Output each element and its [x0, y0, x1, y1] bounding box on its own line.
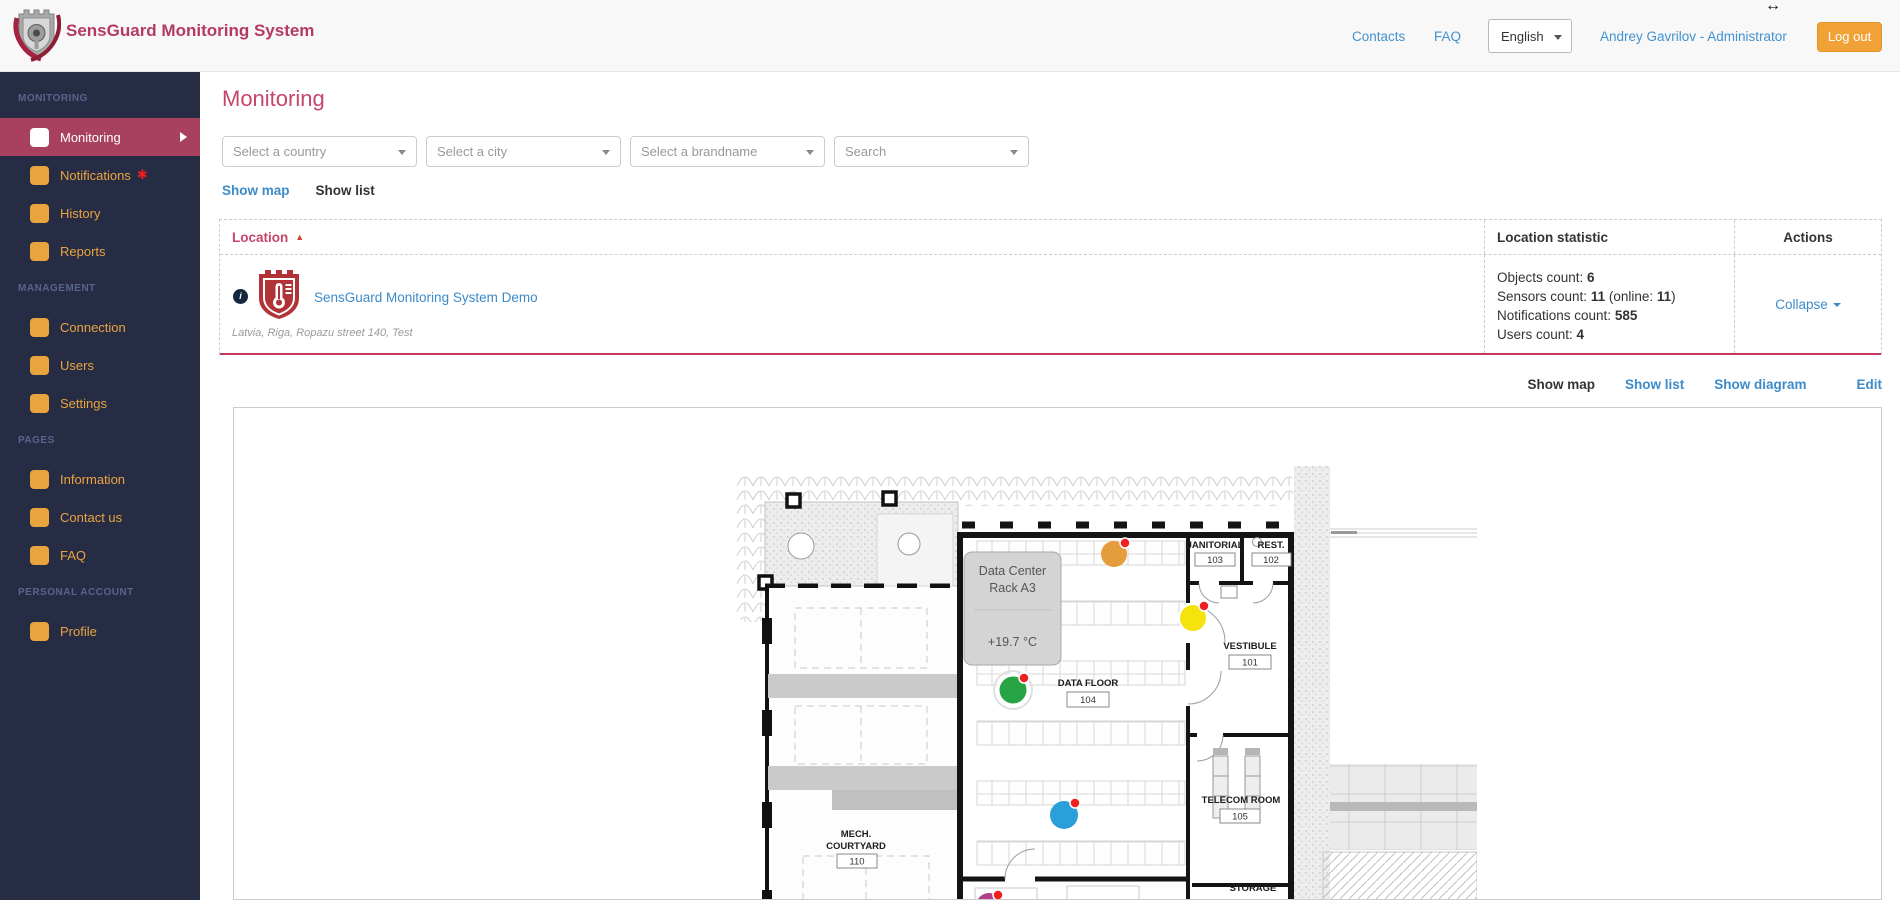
- sidebar-section-monitoring: MONITORING: [0, 80, 200, 118]
- country-select[interactable]: Select a country: [222, 136, 417, 167]
- sidebar-item-monitoring[interactable]: Monitoring: [0, 118, 200, 156]
- profile-icon: [30, 622, 49, 641]
- row-show-list-link[interactable]: Show list: [1625, 377, 1684, 392]
- server-rack-row: [977, 721, 1185, 745]
- room-number-110: 110: [849, 857, 864, 868]
- dropdown-caret-icon: [398, 150, 406, 155]
- alert-dot-icon: [1120, 538, 1130, 548]
- sidebar-item-history[interactable]: History: [0, 194, 200, 232]
- sidebar-section-management: MANAGEMENT: [0, 270, 200, 308]
- collapse-button[interactable]: Collapse: [1775, 297, 1841, 312]
- city-select[interactable]: Select a city: [426, 136, 621, 167]
- server-rack-row: [977, 841, 1185, 865]
- logout-button[interactable]: Log out: [1817, 22, 1882, 52]
- stat-notifications: Notifications count: 585: [1497, 306, 1734, 325]
- connection-icon: [30, 318, 49, 337]
- column-post: [787, 494, 800, 507]
- resize-cursor-icon: ↔: [1765, 0, 1781, 15]
- room-number-105: 105: [1232, 812, 1248, 823]
- dropdown-caret-icon: [602, 150, 610, 155]
- sidebar: MONITORING Monitoring Notifications ✱ Hi…: [0, 72, 200, 900]
- show-map-toggle[interactable]: Show map: [222, 183, 290, 198]
- language-select[interactable]: English: [1488, 19, 1572, 53]
- row-show-diagram-link[interactable]: Show diagram: [1714, 377, 1806, 392]
- sensor-green[interactable]: [994, 671, 1032, 709]
- sensor-tooltip: Data Center Rack A3 +19.7 °C: [964, 552, 1061, 665]
- room-label-mech: MECH.: [841, 829, 872, 840]
- brand-title: SensGuard Monitoring System: [66, 21, 314, 41]
- column-header-location[interactable]: Location ▲: [220, 220, 1484, 254]
- monitoring-icon: [30, 128, 49, 147]
- actions-cell: Collapse: [1734, 255, 1881, 353]
- filters-bar: Select a country Select a city Select a …: [222, 136, 1029, 167]
- table-row: i SensGuard Monitoring System Demo Latvi…: [220, 255, 1881, 355]
- users-icon: [30, 356, 49, 375]
- location-shield-logo-icon: [256, 268, 302, 325]
- table-header-row: Location ▲ Location statistic Actions: [220, 220, 1881, 255]
- user-profile-link[interactable]: Andrey Gavrilov - Administrator: [1600, 29, 1787, 44]
- locations-table: Location ▲ Location statistic Actions i: [219, 219, 1882, 355]
- room-number-104: 104: [1080, 695, 1096, 706]
- mech-courtyard: [767, 588, 958, 900]
- history-icon: [30, 204, 49, 223]
- stat-users: Users count: 4: [1497, 325, 1734, 344]
- sidebar-item-settings[interactable]: Settings: [0, 384, 200, 422]
- top-header: SensGuard Monitoring System Contacts FAQ…: [0, 0, 1900, 72]
- faq-icon: [30, 546, 49, 565]
- faq-link[interactable]: FAQ: [1434, 29, 1461, 44]
- location-name-link[interactable]: SensGuard Monitoring System Demo: [314, 290, 538, 305]
- alert-asterisk-icon: ✱: [137, 167, 148, 183]
- brandname-select[interactable]: Select a brandname: [630, 136, 825, 167]
- sidewalk-strip: [1294, 466, 1330, 900]
- sidebar-item-contact-us[interactable]: Contact us: [0, 498, 200, 536]
- row-show-map-link[interactable]: Show map: [1527, 377, 1595, 392]
- sidebar-item-users[interactable]: Users: [0, 346, 200, 384]
- tooltip-title-line2: Rack A3: [989, 581, 1036, 595]
- column-header-actions: Actions: [1734, 220, 1881, 254]
- contacts-link[interactable]: Contacts: [1352, 29, 1405, 44]
- sidebar-section-personal-account: PERSONAL ACCOUNT: [0, 574, 200, 612]
- room-number-101: 101: [1242, 658, 1258, 669]
- stat-objects: Objects count: 6: [1497, 268, 1734, 287]
- walkway-band: [768, 674, 958, 698]
- sidebar-item-information[interactable]: Information: [0, 460, 200, 498]
- page-title: Monitoring: [222, 86, 325, 112]
- location-view-links: Show map Show list Show diagram Edit: [1420, 377, 1882, 392]
- tooltip-title-line1: Data Center: [979, 564, 1046, 578]
- stat-sensors: Sensors count: 11 (online: 11): [1497, 287, 1734, 306]
- contact-us-icon: [30, 508, 49, 527]
- alert-dot-icon: [1199, 601, 1209, 611]
- server-rack-row: [977, 781, 1185, 805]
- tooltip-temperature: +19.7 °C: [988, 635, 1037, 649]
- map-panel: JANITORIAL 103 REST. 102 VESTIBULE 101 D…: [233, 407, 1882, 900]
- location-address: Latvia, Riga, Ropazu street 140, Test: [232, 327, 413, 339]
- settings-icon: [30, 394, 49, 413]
- sidebar-item-connection[interactable]: Connection: [0, 308, 200, 346]
- collapse-caret-icon: [1833, 303, 1841, 307]
- room-label-vestibule: VESTIBULE: [1223, 641, 1276, 652]
- landscaping-hatch-left: [737, 472, 767, 622]
- room-label-rest: REST.: [1258, 540, 1285, 551]
- patio-table: [898, 533, 920, 555]
- walkway-band: [768, 766, 958, 790]
- patio-table: [788, 533, 814, 559]
- search-select[interactable]: Search: [834, 136, 1029, 167]
- room-number-103: 103: [1207, 555, 1223, 566]
- row-edit-link[interactable]: Edit: [1857, 377, 1883, 392]
- sidebar-item-notifications[interactable]: Notifications ✱: [0, 156, 200, 194]
- language-select-value: English: [1501, 29, 1544, 44]
- notifications-icon: [30, 166, 49, 185]
- chevron-down-icon: [1554, 35, 1562, 40]
- column-post: [883, 492, 896, 505]
- sidebar-item-profile[interactable]: Profile: [0, 612, 200, 650]
- column-header-statistic: Location statistic: [1484, 220, 1734, 254]
- show-list-toggle[interactable]: Show list: [316, 183, 375, 198]
- alert-dot-icon: [1070, 798, 1080, 808]
- brand-shield-logo-icon: [13, 6, 61, 67]
- dropdown-caret-icon: [806, 150, 814, 155]
- statistic-cell: Objects count: 6 Sensors count: 11 (onli…: [1484, 255, 1734, 353]
- room-label-data-floor: DATA FLOOR: [1058, 678, 1119, 689]
- landscaping-hatch: [739, 472, 1293, 506]
- sidebar-item-reports[interactable]: Reports: [0, 232, 200, 270]
- room-label-courtyard: COURTYARD: [826, 841, 886, 852]
- info-icon[interactable]: i: [233, 289, 248, 304]
- view-toggle: Show map Show list: [222, 183, 375, 198]
- alert-dot-icon: [1019, 673, 1029, 683]
- sidebar-section-pages: PAGES: [0, 422, 200, 460]
- sort-asc-icon: ▲: [295, 232, 304, 242]
- hatched-area: [1323, 852, 1477, 900]
- location-cell: i SensGuard Monitoring System Demo Latvi…: [220, 255, 1484, 353]
- information-icon: [30, 470, 49, 489]
- alert-dot-icon: [993, 890, 1003, 900]
- reports-icon: [30, 242, 49, 261]
- submenu-arrow-icon: [180, 132, 187, 142]
- floor-plan: JANITORIAL 103 REST. 102 VESTIBULE 101 D…: [737, 458, 1477, 900]
- room-label-janitorial: JANITORIAL: [1187, 540, 1244, 551]
- dropdown-caret-icon: [1010, 150, 1018, 155]
- room-label-telecom-room: TELECOM ROOM: [1202, 795, 1281, 806]
- room-number-102: 102: [1263, 555, 1279, 566]
- room-label-storage: STORAGE: [1230, 883, 1277, 894]
- sidebar-item-faq[interactable]: FAQ: [0, 536, 200, 574]
